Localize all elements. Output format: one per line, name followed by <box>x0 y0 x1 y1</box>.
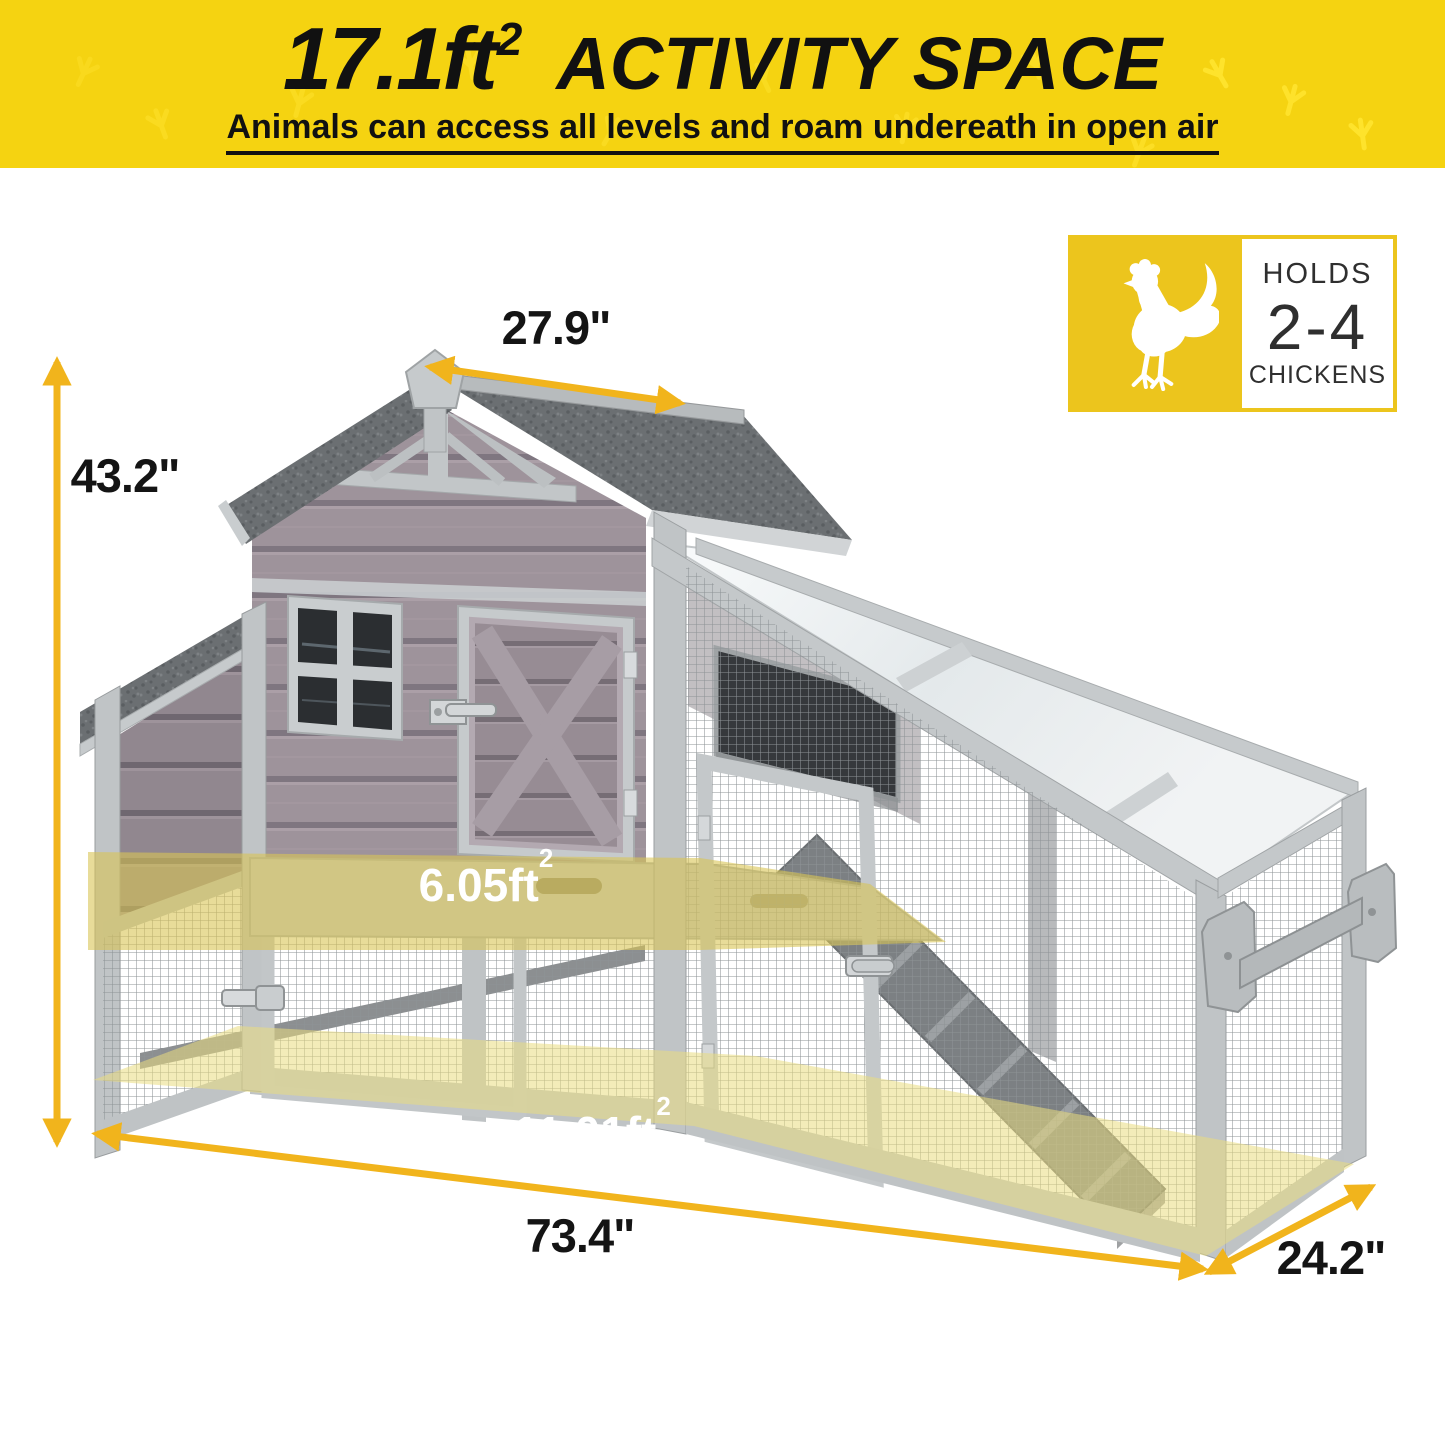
run-door-latch <box>846 956 894 976</box>
banner-subtitle: Animals can access all levels and roam u… <box>226 109 1218 154</box>
lower-door-latch <box>222 986 284 1010</box>
badge-count: 2-4 <box>1267 295 1369 359</box>
length-dimension-label: 73.4" <box>480 1212 680 1259</box>
run-rear-post <box>1342 788 1366 1168</box>
depth-dimension-label: 24.2" <box>1231 1234 1431 1281</box>
rooster-icon <box>1068 235 1238 412</box>
barn-door <box>430 606 637 862</box>
banner-area-sup: 2 <box>497 16 523 62</box>
barn-window <box>288 596 402 740</box>
height-dimension-label: 43.2" <box>55 452 195 499</box>
run-left-post <box>654 512 686 1134</box>
capacity-badge: HOLDS 2-4 CHICKENS <box>1068 235 1397 412</box>
coop-illustration <box>0 0 1445 1445</box>
badge-holds-label: HOLDS <box>1263 260 1373 289</box>
banner-area-label: ACTIVITY SPACE <box>556 27 1162 101</box>
banner-title: 17.1ft2 ACTIVITY SPACE <box>283 15 1162 103</box>
activity-space-banner: 17.1ft2 ACTIVITY SPACE Animals can acces… <box>0 0 1445 168</box>
banner-area-value: 17.1ft <box>283 15 495 103</box>
roof-width-dimension-label: 27.9" <box>456 304 656 351</box>
badge-chickens-label: CHICKENS <box>1249 363 1386 388</box>
upper-area-label: 6.05ft2 <box>386 862 586 908</box>
ground-area-label: 11.01ft2 <box>482 1110 702 1156</box>
capacity-badge-text: HOLDS 2-4 CHICKENS <box>1238 235 1397 412</box>
